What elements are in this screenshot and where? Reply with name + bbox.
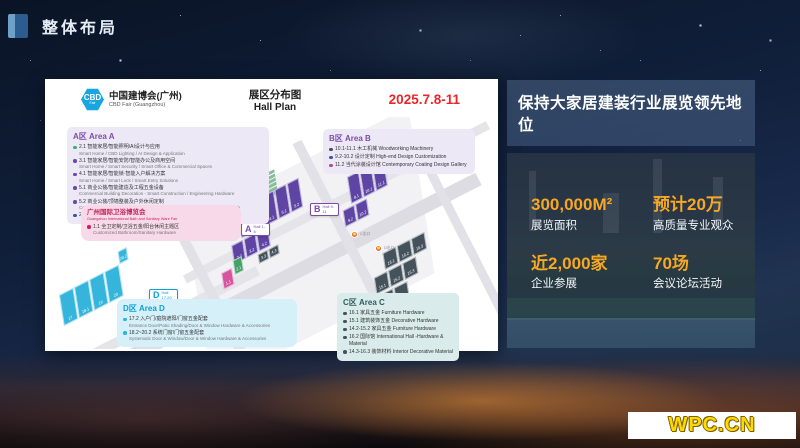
page-title: 整体布局 (42, 14, 118, 38)
gate-label: C出口 (360, 233, 370, 237)
stat-item: 预计20万 高质量专业观众 (653, 195, 734, 233)
stat-item: 近2,000家 企业参展 (531, 254, 647, 292)
area-list-item: 4.1 智能家居/智能锁·智能入户解决方案 Smart Home / Smart… (73, 171, 263, 183)
stats-grid: 300,000M² 展览面积 预计20万 高质量专业观众 近2,000家 企业参… (531, 195, 734, 291)
wpc-logo: WPC.CN (668, 414, 755, 437)
area-b-panel: B区 Area B 10.1-11.1 木工机械 Woodworking Mac… (323, 129, 475, 174)
fair-dates: 2025.7.8-11 (389, 92, 460, 107)
gate-marker: D出口 (375, 245, 394, 252)
right-panel-title: 保持大家居建装行业展览领先地位 (518, 91, 745, 135)
area-list-item: 14.3-16.3 装饰材料 Interior Decorative Mater… (343, 349, 453, 356)
hall-tile: 20.2 (118, 247, 129, 264)
gate-icon (351, 231, 358, 238)
bullet-dot-icon (329, 164, 333, 168)
area-d-title: D区 Area D (123, 303, 291, 314)
slide-header: 整体布局 (8, 14, 118, 38)
bullet-dot-icon (73, 173, 77, 177)
stat-label: 展览面积 (531, 217, 647, 233)
area-c-title: C区 Area C (343, 297, 453, 308)
area-list-item: 16.1 家具五金 Furniture Hardware (343, 310, 453, 317)
hall-block-d: 1718.11920 20.2 (59, 265, 124, 327)
stat-label: 高质量专业观众 (653, 217, 734, 233)
bullet-dot-icon (329, 148, 333, 152)
bullet-dot-icon (343, 328, 347, 332)
brand-name-cn: 中国建博会(广州) (109, 91, 182, 102)
bullet-dot-icon (343, 350, 347, 354)
right-panel-photo: 300,000M² 展览面积 预计20万 高质量专业观众 近2,000家 企业参… (507, 153, 755, 348)
bullet-dot-icon (123, 331, 127, 335)
bullet-dot-icon (73, 159, 77, 163)
area-list-item: 9.2-10.2 设计定制 High-end Design Customizat… (329, 154, 469, 161)
area-list-item: 15.1 建筑装饰五金 Decorative Hardware (343, 318, 453, 325)
area-a-title: A区 Area A (73, 131, 263, 142)
area-list-item: 1.1 全卫定制/卫浴五金/阳台休闲主题区 Customized Bathroo… (87, 224, 235, 236)
area-list-item: 16.2 国际馆 International Hall -Hardware & … (343, 334, 453, 347)
gate-label: D出口 (384, 247, 394, 251)
area-list-item: 17.2 入户门/庭院遮阳/门窗五金配套 Entrance Door/Patio… (123, 316, 291, 328)
hall-plan-card: CBD Fair 中国建博会(广州) CBD Fair (Guangzhou) … (45, 79, 498, 351)
gate-icon (375, 245, 382, 252)
bullet-dot-icon (343, 336, 347, 340)
stat-value: 近2,000家 (531, 254, 647, 274)
hall-badge-b: B Hall 9-11 (310, 203, 339, 216)
bullet-dot-icon (343, 312, 347, 316)
stat-label: 企业参展 (531, 275, 647, 291)
area-b-title: B区 Area B (329, 133, 469, 144)
title-bullet-icon (8, 14, 28, 38)
bullet-dot-icon (73, 200, 77, 204)
area-list-item: 2.1 智能家居/智能照明/AI设计与应用 Smart Home / CBD L… (73, 144, 263, 156)
cbd-brand: CBD Fair 中国建博会(广州) CBD Fair (Guangzhou) (81, 88, 182, 111)
area-list-item: 11.2 当代涂装设计馆 Contemporary Coating Design… (329, 162, 469, 169)
hall-badge-a: A Hall 1-5 (241, 223, 270, 236)
area-list-item: 10.1-11.1 木工机械 Woodworking Machinery (329, 146, 469, 153)
photo-river (507, 318, 755, 348)
gate-marker: C出口 (351, 231, 370, 238)
bullet-dot-icon (123, 318, 127, 322)
plan-title: 展区分布图 Hall Plan (205, 87, 345, 113)
stat-value: 预计20万 (653, 195, 734, 215)
bullet-dot-icon (329, 156, 333, 160)
area-list-item: 3.1 智能家居/智能安防/智能办公及商用空间 Smart Home / Sma… (73, 158, 263, 170)
cbd-logo-icon: CBD Fair (81, 88, 104, 111)
photo-greenery (507, 298, 755, 320)
wpc-logo-box: WPC.CN (628, 412, 796, 439)
brand-name-en: CBD Fair (Guangzhou) (109, 102, 182, 109)
stat-value: 300,000M² (531, 195, 647, 215)
right-panel-title-box: 保持大家居建装行业展览领先地位 (507, 80, 755, 146)
sanitary-fair-panel: 广州国际卫浴博览会 Guangzhou International Bath a… (81, 205, 241, 241)
bullet-dot-icon (73, 146, 77, 150)
stat-item: 300,000M² 展览面积 (531, 195, 647, 233)
stat-item: 70场 会议论坛活动 (653, 254, 734, 292)
area-c-panel: C区 Area C 16.1 家具五金 Furniture Hardware 1… (337, 293, 459, 361)
area-list-item: 14.2-15.2 家具五金 Furniture Hardware (343, 326, 453, 333)
bullet-dot-icon (73, 214, 77, 218)
stat-value: 70场 (653, 254, 734, 274)
sanitary-title-cn: 广州国际卫浴博览会 (87, 209, 235, 217)
bullet-dot-icon (343, 320, 347, 324)
area-list-item: 5.1 商业公装/智能建造及工程五金设备 Commercial Building… (73, 185, 263, 197)
area-d-panel: D区 Area D 17.2 入户门/庭院遮阳/门窗五金配套 Entrance … (117, 299, 297, 347)
bullet-dot-icon (87, 225, 91, 229)
stat-label: 会议论坛活动 (653, 275, 734, 291)
sanitary-title-en: Guangzhou International Bath and Sanitar… (87, 217, 235, 222)
bullet-dot-icon (73, 186, 77, 190)
area-list-item: 18.2~20.2 系统门窗/门窗五金配套 Systematic Door & … (123, 330, 291, 342)
